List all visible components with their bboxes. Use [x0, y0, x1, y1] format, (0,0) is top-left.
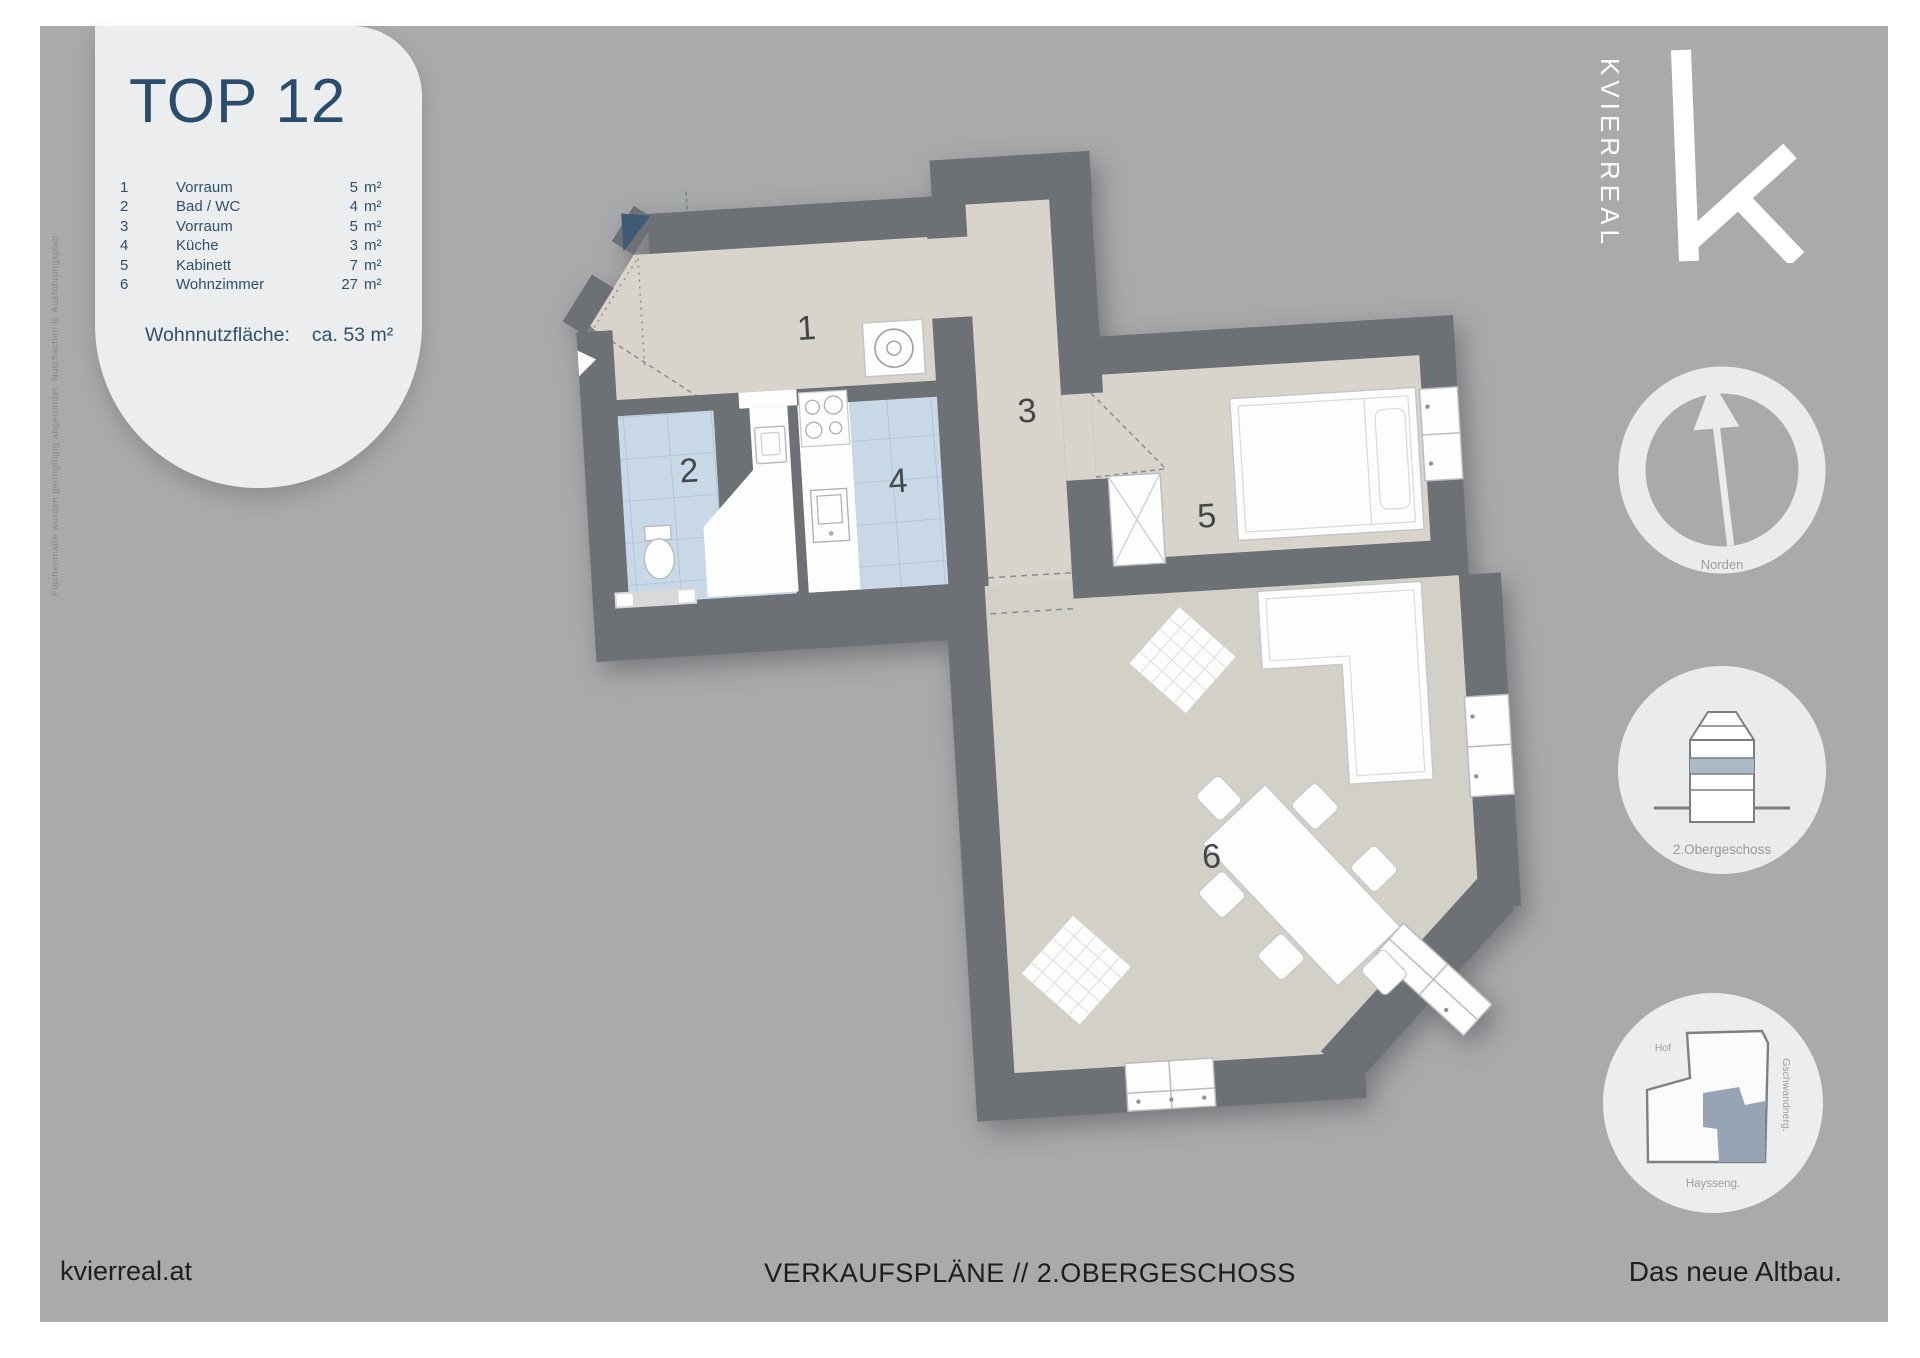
room-label-4: 4: [887, 462, 908, 501]
info-panel: TOP 12 1 Vorraum 5 m² 2 Bad / WC 4 m² 3 …: [95, 26, 422, 488]
page: Flächenmaße wurden geringfügig abgerunde…: [0, 0, 1920, 1358]
toilet: [642, 525, 675, 580]
siteplan-badge: Hof Gschwandnerg. Haysseng.: [1601, 991, 1825, 1215]
table-row: 6 Wohnzimmer 27 m²: [120, 275, 405, 294]
room-unit: m²: [364, 197, 400, 216]
table-row: 1 Vorraum 5 m²: [120, 178, 405, 197]
room-nr: 2: [120, 197, 176, 216]
cooktop: [799, 390, 850, 447]
room-area: 27: [334, 275, 364, 294]
unit-title: TOP 12: [129, 66, 346, 137]
room-area: 3: [334, 236, 364, 255]
north-arrow-icon: [1689, 379, 1749, 548]
room-label-5: 5: [1196, 497, 1217, 536]
room-name: Küche: [176, 236, 334, 255]
room-name: Wohnzimmer: [176, 275, 334, 294]
room-nr: 1: [120, 178, 176, 197]
brand-wordmark: KVIERREAL: [1594, 58, 1625, 268]
siteplan-label-street-right: Gschwandnerg.: [1780, 1058, 1792, 1132]
door-opening-floor: [924, 236, 974, 319]
storey-label: 2.Obergeschoss: [1673, 842, 1772, 857]
room-area: 5: [334, 178, 364, 197]
washbasin: [755, 426, 787, 464]
room-nr: 5: [120, 256, 176, 275]
room-name: Vorraum: [176, 178, 334, 197]
room-nr: 4: [120, 236, 176, 255]
building-section-icon: [1690, 712, 1754, 822]
table-row: 3 Vorraum 5 m²: [120, 217, 405, 236]
room-label-2: 2: [678, 451, 699, 490]
room-name: Vorraum: [176, 217, 334, 236]
room-unit: m²: [364, 256, 400, 275]
total-area-label: Wohnnutzfläche:: [145, 324, 290, 346]
room-label-6: 6: [1201, 837, 1222, 876]
room-name: Kabinett: [176, 256, 334, 275]
room-area: 7: [334, 256, 364, 275]
room-unit: m²: [364, 217, 400, 236]
room-label-1: 1: [796, 309, 817, 348]
disclaimer-text: Flächenmaße wurden geringfügig abgerunde…: [50, 160, 61, 596]
door-opening-floor: [1061, 391, 1096, 481]
table-row: 4 Küche 3 m²: [120, 236, 405, 255]
room-vorraum1-floor: [586, 237, 938, 402]
room-area: 5: [334, 217, 364, 236]
room-unit: m²: [364, 275, 400, 294]
kitchen-sink: [810, 488, 849, 542]
window-living-right: [1464, 694, 1514, 796]
wardrobe: [1108, 473, 1165, 566]
room-area: 4: [334, 197, 364, 216]
compass-badge: Norden: [1612, 360, 1832, 580]
brand-k-icon: [1655, 48, 1805, 263]
total-area-line: Wohnnutzfläche:ca. 53 m²: [145, 324, 393, 347]
room-unit: m²: [364, 236, 400, 255]
room-table: 1 Vorraum 5 m² 2 Bad / WC 4 m² 3 Vorraum…: [120, 178, 405, 294]
bed: [1230, 387, 1424, 540]
room-name: Bad / WC: [176, 197, 334, 216]
room-label-3: 3: [1016, 392, 1037, 431]
total-area-value: ca. 53 m²: [312, 324, 393, 346]
floorplan: 1 2 3 4 5 6: [530, 120, 1570, 1220]
brand-claim: Das neue Altbau.: [1629, 1256, 1842, 1288]
washing-machine: [862, 319, 925, 377]
storey-badge: 2.Obergeschoss: [1616, 664, 1828, 876]
siteplan-label-hof: Hof: [1655, 1042, 1671, 1054]
room-nr: 6: [120, 275, 176, 294]
window-kabinett: [1419, 387, 1463, 481]
window-living-bottom: [1125, 1058, 1216, 1111]
room-nr: 3: [120, 217, 176, 236]
room-unit: m²: [364, 178, 400, 197]
siteplan-label-street-bottom: Haysseng.: [1686, 1178, 1740, 1190]
compass-label: Norden: [1701, 557, 1744, 572]
table-row: 2 Bad / WC 4 m²: [120, 197, 405, 216]
table-row: 5 Kabinett 7 m²: [120, 256, 405, 275]
